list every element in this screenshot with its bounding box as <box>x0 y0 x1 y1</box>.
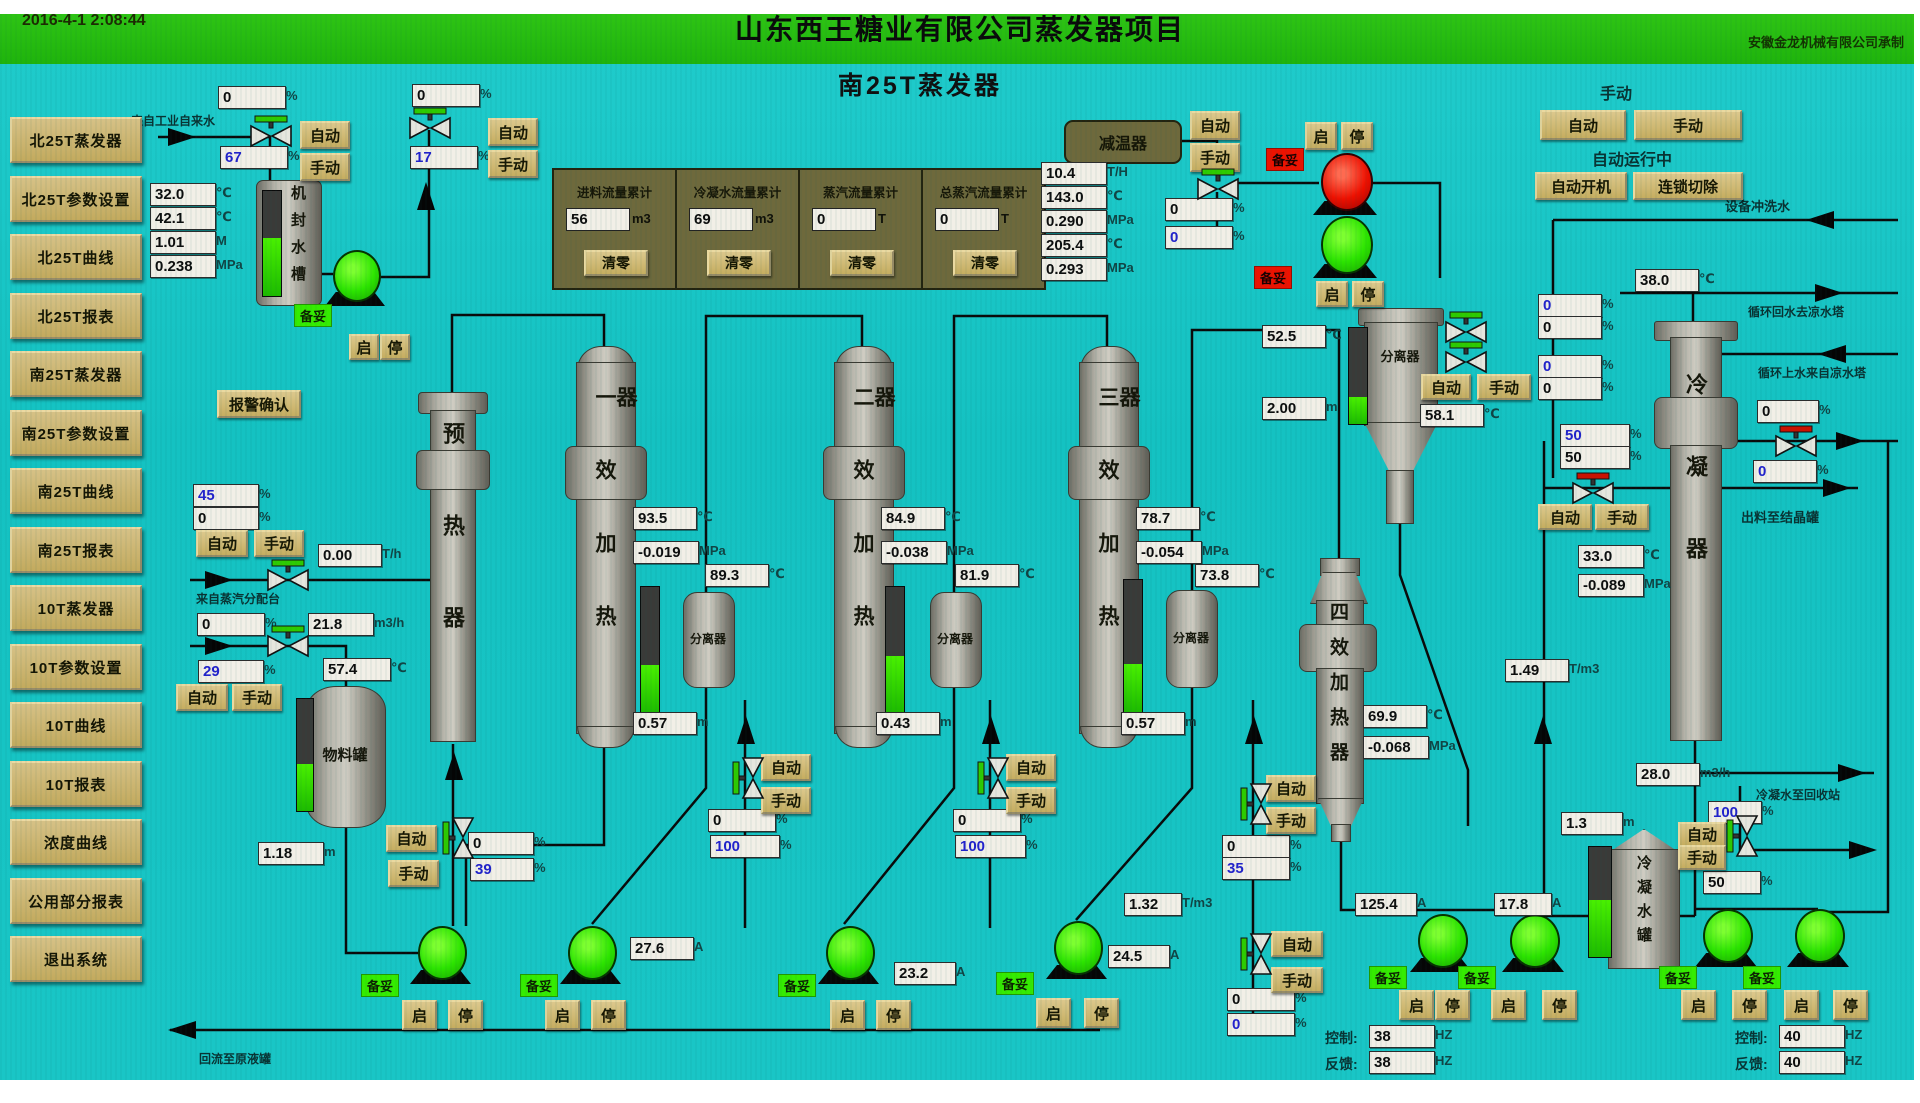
unit-label: ℃ <box>697 509 713 525</box>
process-value-box: -0.054 <box>1136 541 1202 564</box>
process-value-box: 0.57 <box>633 712 697 735</box>
main-separator-label: 分离器 <box>1364 346 1436 365</box>
setpoint-box[interactable]: 17 <box>410 146 478 169</box>
process-value-box: 0 <box>412 84 480 107</box>
totalizer-value: 56 <box>566 208 630 231</box>
control-valve[interactable] <box>1776 426 1816 456</box>
process-value-box: 69.9 <box>1363 705 1427 728</box>
process-value-box: 40 <box>1779 1051 1845 1074</box>
level-gauge <box>296 698 314 812</box>
flow-arrow-u <box>1245 716 1263 744</box>
setpoint-box[interactable]: 100 <box>955 835 1026 858</box>
pump-running[interactable] <box>333 250 381 302</box>
unit-label: A <box>956 964 965 979</box>
unit-label: % <box>534 834 546 849</box>
effect2-separator-label: 分离器 <box>930 630 980 647</box>
flow-arrow-r <box>1836 432 1864 450</box>
hmi-button[interactable]: 自动 <box>1266 775 1316 802</box>
preheater-column: 预热器 <box>416 392 488 748</box>
hmi-button[interactable]: 手动 <box>1678 845 1726 870</box>
unit-label: M <box>216 233 227 248</box>
unit-label: % <box>480 86 492 101</box>
totalizer-header: 蒸汽流量累计 <box>800 182 921 201</box>
process-value-box: 0 <box>218 86 286 109</box>
material-tank-label: 物料罐 <box>306 744 384 765</box>
sidebar-item-9[interactable]: 10T参数设置 <box>10 644 142 690</box>
process-value-box: 38.0 <box>1635 269 1699 292</box>
flow-arrow-r <box>1838 764 1866 782</box>
totalizer-clear-button[interactable]: 清零 <box>953 250 1017 276</box>
unit-label: T/h <box>382 546 402 561</box>
level-gauge-fill <box>641 665 659 713</box>
control-valve[interactable] <box>1446 342 1486 372</box>
hmi-button[interactable]: 启 <box>1305 122 1337 150</box>
hmi-button[interactable]: 手动 <box>232 684 282 711</box>
process-value-box: 17.8 <box>1494 893 1552 916</box>
unit-label: MPa <box>1202 543 1229 558</box>
totalizer-value: 0 <box>935 208 999 231</box>
page-title: 山东西王糖业有限公司蒸发器项目 <box>0 8 1920 48</box>
hmi-button[interactable]: 自动 <box>761 754 811 781</box>
hmi-button[interactable]: 启 <box>1681 990 1716 1020</box>
pipe-label: 反馈: <box>1325 1054 1358 1074</box>
unit-label: A <box>1170 947 1179 962</box>
process-value-box: 52.5 <box>1262 325 1326 348</box>
totalizer-header: 冷凝水流量累计 <box>677 182 798 201</box>
totalizer-value: 0 <box>812 208 876 231</box>
flow-arrow-u <box>445 752 463 780</box>
control-valve[interactable] <box>1198 169 1238 199</box>
hmi-button[interactable]: 自动 <box>1006 754 1056 781</box>
control-valve[interactable] <box>410 108 450 138</box>
process-value-box: 0.00 <box>318 544 382 567</box>
flow-arrow-r <box>168 128 196 146</box>
hmi-button[interactable]: 启 <box>1399 990 1434 1020</box>
unit-label: ℃ <box>216 185 232 201</box>
hmi-button[interactable]: 手动 <box>1006 787 1056 814</box>
process-value-box: 0 <box>197 613 265 636</box>
sidebar-item-7[interactable]: 南25T报表 <box>10 527 142 573</box>
sidebar-item-6[interactable]: 南25T曲线 <box>10 468 142 514</box>
unit-label: m3/h <box>374 615 404 630</box>
process-value-box: 50 <box>1703 871 1761 894</box>
process-value-box: 93.5 <box>633 507 697 530</box>
totalizer-cell-1: 冷凝水流量累计69m3清零 <box>677 170 800 288</box>
sidebar-item-10[interactable]: 10T曲线 <box>10 702 142 748</box>
ready-tag: 备妥 <box>1458 966 1496 989</box>
hmi-button[interactable]: 手动 <box>1477 374 1531 400</box>
setpoint-box[interactable]: 35 <box>1222 857 1290 880</box>
desuperheater-label: 减温器 <box>1064 120 1182 164</box>
process-value-box: 28.0 <box>1636 763 1700 786</box>
unit-label: ℃ <box>216 209 232 225</box>
effect4-label: 四效加热器 <box>1328 602 1347 777</box>
process-value-box: 1.18 <box>258 842 324 865</box>
process-value-box: 0 <box>1538 316 1602 339</box>
alarm-ready-tag: 备妥 <box>1254 266 1292 289</box>
process-value-box: 0.57 <box>1121 712 1185 735</box>
process-value-box: 38 <box>1369 1051 1435 1074</box>
hmi-button[interactable]: 启 <box>545 1000 580 1030</box>
unit-label: A <box>1417 895 1426 910</box>
totalizer-unit: m3 <box>632 211 651 226</box>
sidebar-item-13[interactable]: 公用部分报表 <box>10 878 142 924</box>
hmi-button[interactable]: 启 <box>1036 998 1071 1028</box>
setpoint-box[interactable]: 0 <box>1165 226 1233 249</box>
pipe-label: 冷凝水至回收站 <box>1756 786 1840 803</box>
hmi-button[interactable]: 停 <box>1732 990 1767 1020</box>
control-valve[interactable] <box>443 818 473 858</box>
unit-label: % <box>1602 357 1614 372</box>
level-gauge-fill <box>886 656 904 713</box>
pipe-label: 回流至原液罐 <box>199 1050 271 1067</box>
hmi-button[interactable]: 手动 <box>300 153 350 181</box>
effect1-label: 一效加热器 <box>594 386 636 748</box>
hmi-button[interactable]: 手动 <box>388 860 439 887</box>
process-value-box: 33.0 <box>1578 545 1644 568</box>
pipe-label: 循环回水去凉水塔 <box>1748 303 1844 320</box>
hmi-button[interactable]: 自动 <box>300 121 350 149</box>
desuperheater-value: 0.290 <box>1041 210 1107 233</box>
pump-running[interactable] <box>1510 914 1560 968</box>
process-value-box: 24.5 <box>1108 945 1170 968</box>
sidebar-item-0[interactable]: 北25T蒸发器 <box>10 117 142 163</box>
process-value-box: -0.089 <box>1578 574 1644 597</box>
level-gauge-fill <box>263 238 281 296</box>
hmi-button[interactable]: 手动 <box>1190 143 1240 172</box>
process-value-box: -0.068 <box>1363 736 1429 759</box>
hmi-button[interactable]: 自动 <box>1538 504 1592 530</box>
control-valve[interactable] <box>1727 816 1757 856</box>
unit-label: % <box>1819 402 1831 417</box>
setpoint-box[interactable]: 0 <box>1753 460 1817 483</box>
flow-arrow-u <box>1534 716 1552 744</box>
unit-label: m <box>697 714 709 729</box>
unit-label: % <box>1602 379 1614 394</box>
condensate-tank-label: 冷凝水罐 <box>1636 855 1651 951</box>
hmi-button[interactable]: 手动 <box>761 787 811 814</box>
control-valve[interactable] <box>1446 312 1486 342</box>
process-value-box: 0 <box>1757 400 1819 423</box>
flow-arrow-l <box>1806 211 1834 229</box>
hmi-button[interactable]: 启 <box>1784 990 1819 1020</box>
ready-tag: 备妥 <box>361 974 399 997</box>
ready-tag: 备妥 <box>1743 966 1781 989</box>
hmi-button[interactable]: 连锁切除 <box>1633 172 1743 200</box>
process-value-box: 1.32 <box>1124 893 1182 916</box>
pump-running[interactable] <box>418 926 467 980</box>
level-gauge <box>1588 846 1612 958</box>
hmi-button[interactable]: 自动 <box>1271 931 1323 957</box>
totalizer-header: 总蒸汽流量累计 <box>923 182 1044 201</box>
control-valve[interactable] <box>268 626 308 656</box>
pipe-label: 控制: <box>1325 1028 1358 1048</box>
effect1-separator-label: 分离器 <box>683 630 733 647</box>
process-value-box: 78.7 <box>1136 507 1200 530</box>
effect3-separator-label: 分离器 <box>1166 629 1216 646</box>
unit-label: % <box>1233 228 1245 243</box>
process-value-box: 0.238 <box>150 255 216 278</box>
hmi-button[interactable]: 停 <box>1352 281 1384 307</box>
unit-label: HZ <box>1845 1053 1862 1068</box>
hmi-button[interactable]: 启 <box>1491 990 1526 1020</box>
setpoint-box[interactable]: 67 <box>220 146 288 169</box>
process-value-box: 2.00 <box>1262 397 1326 420</box>
unit-label: m <box>1623 814 1635 829</box>
unit-label: T/H <box>1107 164 1128 179</box>
process-value-box: 1.01 <box>150 231 216 254</box>
flow-arrow-l <box>168 1021 196 1039</box>
material-tank: 物料罐 <box>306 686 384 826</box>
hmi-button[interactable]: 手动 <box>1266 807 1316 834</box>
unit-label: % <box>1233 200 1245 215</box>
unit-label: m <box>940 714 952 729</box>
sidebar-item-5[interactable]: 南25T参数设置 <box>10 410 142 456</box>
hmi-button[interactable]: 自动 <box>1190 111 1240 140</box>
pipe-label: 控制: <box>1735 1028 1768 1048</box>
vendor-credit: 安徽金龙机械有限公司承制 <box>1748 32 1904 51</box>
flow-arrow-r <box>1849 841 1877 859</box>
totalizer-unit: T <box>878 211 886 226</box>
screen-subtitle: 南25T蒸发器 <box>640 66 1200 102</box>
pump-running[interactable] <box>826 926 875 980</box>
effect2-separator: 分离器 <box>930 592 980 686</box>
unit-label: % <box>1290 859 1302 874</box>
unit-label: ℃ <box>1484 406 1500 422</box>
flow-totalizer-panel: 进料流量累计56m3清零冷凝水流量累计69m3清零蒸汽流量累计0T清零总蒸汽流量… <box>552 168 1046 290</box>
setpoint-box[interactable]: 29 <box>198 660 264 683</box>
desuperheater-value: 205.4 <box>1041 234 1107 257</box>
process-value-box: 21.8 <box>308 613 374 636</box>
alarm-ready-tag: 备妥 <box>1266 148 1304 171</box>
unit-label: MPa <box>1644 576 1671 591</box>
hmi-button[interactable]: 自动 <box>386 825 437 852</box>
process-value-box: 0 <box>193 507 259 530</box>
setpoint-box[interactable]: 0 <box>1538 355 1602 378</box>
unit-label: ℃ <box>391 660 407 676</box>
pump-running[interactable] <box>1054 921 1103 975</box>
sidebar-item-1[interactable]: 北25T参数设置 <box>10 176 142 222</box>
desuperheater-value: 0.293 <box>1041 258 1107 281</box>
hmi-button[interactable]: 手动 <box>1634 110 1742 140</box>
sidebar-item-3[interactable]: 北25T报表 <box>10 293 142 339</box>
unit-label: MPa <box>947 543 974 558</box>
process-value-box: 1.49 <box>1505 659 1569 682</box>
hmi-button[interactable]: 停 <box>1542 990 1577 1020</box>
pump-stopped[interactable] <box>1321 153 1373 211</box>
pipe-label: 手动 <box>1600 80 1632 104</box>
process-value-box: 27.6 <box>630 937 694 960</box>
hmi-button[interactable]: 手动 <box>1271 967 1323 993</box>
hmi-button[interactable]: 停 <box>1084 998 1119 1028</box>
process-value-box: 50 <box>1560 446 1630 469</box>
level-gauge <box>885 586 905 714</box>
effect3-separator: 分离器 <box>1166 590 1216 686</box>
level-gauge <box>262 190 282 297</box>
flow-arrow-u <box>982 716 1000 744</box>
sidebar-item-12[interactable]: 浓度曲线 <box>10 819 142 865</box>
process-value-box: 81.9 <box>955 564 1019 587</box>
totalizer-clear-button[interactable]: 清零 <box>584 250 648 276</box>
sidebar-item-14[interactable]: 退出系统 <box>10 936 142 982</box>
pump-running[interactable] <box>1703 909 1753 963</box>
ready-tag: 备妥 <box>778 974 816 997</box>
process-value-box: 57.4 <box>323 658 391 681</box>
flow-arrow-r <box>205 571 233 589</box>
unit-label: ℃ <box>1019 566 1035 582</box>
unit-label: m <box>324 844 336 859</box>
control-valve[interactable] <box>1573 473 1613 503</box>
unit-label: MPa <box>1107 212 1134 227</box>
hmi-button[interactable]: 自动 <box>196 530 248 557</box>
sidebar-item-8[interactable]: 10T蒸发器 <box>10 585 142 631</box>
flow-arrow-u <box>417 182 435 210</box>
hmi-button[interactable]: 启 <box>830 1000 865 1030</box>
unit-label: A <box>1552 895 1561 910</box>
process-value-box: 58.1 <box>1420 404 1484 427</box>
level-gauge-fill <box>1589 900 1611 957</box>
setpoint-box[interactable]: 0 <box>1538 294 1602 317</box>
unit-label: ℃ <box>1107 188 1123 204</box>
condenser-label: 冷凝器 <box>1684 373 1706 619</box>
control-valve[interactable] <box>268 560 308 590</box>
unit-label: % <box>1630 426 1642 441</box>
ready-tag: 备妥 <box>1659 966 1697 989</box>
level-gauge <box>1348 327 1368 425</box>
hmi-button[interactable]: 启 <box>1316 281 1348 307</box>
hmi-button[interactable]: 自动 <box>176 684 228 711</box>
process-value-box: 0 <box>1538 377 1602 400</box>
process-value-box: 32.0 <box>150 183 216 206</box>
pipe-label: 出料至结晶罐 <box>1741 507 1819 526</box>
process-value-box: 38 <box>1369 1025 1435 1048</box>
totalizer-clear-button[interactable]: 清零 <box>830 250 894 276</box>
hmi-button[interactable]: 停 <box>876 1000 911 1030</box>
setpoint-box[interactable]: 0 <box>1227 1013 1295 1036</box>
unit-label: ℃ <box>1427 707 1443 723</box>
unit-label: ℃ <box>1326 327 1342 343</box>
control-valve[interactable] <box>978 758 1008 798</box>
unit-label: HZ <box>1435 1027 1452 1042</box>
setpoint-box[interactable]: 39 <box>470 858 534 881</box>
unit-label: MPa <box>699 543 726 558</box>
level-gauge-fill <box>1349 397 1367 424</box>
process-value-box: 0 <box>1165 198 1233 221</box>
control-valve[interactable] <box>1241 934 1271 974</box>
hmi-button[interactable]: 停 <box>591 1000 626 1030</box>
pump-running[interactable] <box>1418 914 1468 968</box>
unit-label: ℃ <box>945 509 961 525</box>
process-value-box: 23.2 <box>894 962 956 985</box>
unit-label: m <box>1326 399 1338 414</box>
totalizer-cell-0: 进料流量累计56m3清零 <box>554 170 677 288</box>
flow-arrow-r <box>1823 479 1851 497</box>
process-value-box: 73.8 <box>1195 564 1259 587</box>
pipe-label: 反馈: <box>1735 1054 1768 1074</box>
setpoint-box[interactable]: 100 <box>710 835 780 858</box>
unit-label: T/m3 <box>1182 895 1212 910</box>
unit-label: % <box>1290 837 1302 852</box>
unit-label: % <box>1602 318 1614 333</box>
level-gauge <box>1123 579 1143 713</box>
unit-label: % <box>1602 296 1614 311</box>
hmi-button[interactable]: 启 <box>402 1000 437 1030</box>
unit-label: ℃ <box>1200 509 1216 525</box>
flow-arrow-u <box>737 716 755 744</box>
unit-label: % <box>259 486 271 501</box>
hmi-button[interactable]: 手动 <box>254 530 304 557</box>
unit-label: % <box>780 837 792 852</box>
pump-running[interactable] <box>568 926 617 980</box>
hmi-button[interactable]: 自动 <box>488 118 538 146</box>
sidebar-item-11[interactable]: 10T报表 <box>10 761 142 807</box>
flow-arrow-r <box>1815 284 1843 302</box>
condenser-column: 冷凝器 <box>1654 321 1736 739</box>
control-valve[interactable] <box>733 758 763 798</box>
totalizer-cell-3: 总蒸汽流量累计0T清零 <box>923 170 1044 288</box>
pump-running[interactable] <box>1795 909 1845 963</box>
unit-label: % <box>1762 803 1774 818</box>
sidebar-item-4[interactable]: 南25T蒸发器 <box>10 351 142 397</box>
hmi-button[interactable]: 自动开机 <box>1535 172 1627 200</box>
hmi-button[interactable]: 停 <box>380 334 410 360</box>
hmi-button[interactable]: 自动 <box>1421 374 1471 400</box>
setpoint-box[interactable]: 45 <box>193 484 259 507</box>
control-valve[interactable] <box>1241 784 1271 824</box>
hmi-button[interactable]: 报警确认 <box>217 390 301 418</box>
hmi-button[interactable]: 停 <box>1341 122 1373 150</box>
pipe-label: 来自蒸汽分配台 <box>196 590 280 607</box>
hmi-button[interactable]: 停 <box>448 1000 483 1030</box>
unit-label: MPa <box>1429 738 1456 753</box>
hmi-button[interactable]: 启 <box>349 334 379 360</box>
process-value-box: 42.1 <box>150 207 216 230</box>
totalizer-unit: m3 <box>755 211 774 226</box>
unit-label: % <box>288 148 300 163</box>
pipe-label: 自动运行中 <box>1592 146 1672 170</box>
condensate-tank: 冷凝水罐 <box>1608 829 1678 967</box>
totalizer-header: 进料流量累计 <box>554 182 675 201</box>
pump-running[interactable] <box>1321 216 1373 274</box>
level-gauge <box>640 586 660 714</box>
process-value-box: 1.3 <box>1561 812 1623 835</box>
level-gauge-fill <box>297 764 313 811</box>
hmi-button[interactable]: 停 <box>1435 990 1470 1020</box>
seal-water-tank-label: 机封水槽 <box>290 185 305 293</box>
unit-label: % <box>1630 448 1642 463</box>
unit-label: % <box>1817 462 1829 477</box>
sidebar-item-2[interactable]: 北25T曲线 <box>10 234 142 280</box>
totalizer-clear-button[interactable]: 清零 <box>707 250 771 276</box>
level-gauge-fill <box>1124 664 1142 712</box>
unit-label: MPa <box>1107 260 1134 275</box>
process-value-box: 40 <box>1779 1025 1845 1048</box>
process-value-box: 0.43 <box>876 712 940 735</box>
hmi-button[interactable]: 自动 <box>1540 110 1626 140</box>
totalizer-unit: T <box>1001 211 1009 226</box>
hmi-button[interactable]: 停 <box>1833 990 1868 1020</box>
unit-label: m <box>1185 714 1197 729</box>
process-value-box: 0 <box>1222 835 1290 858</box>
setpoint-box[interactable]: 50 <box>1560 424 1630 447</box>
hmi-button[interactable]: 自动 <box>1678 822 1726 847</box>
unit-label: ℃ <box>1699 271 1715 287</box>
hmi-button[interactable]: 手动 <box>1595 504 1649 530</box>
hmi-button[interactable]: 手动 <box>488 150 538 178</box>
control-valve[interactable] <box>251 116 291 146</box>
flow-arrow-l <box>1818 345 1846 363</box>
totalizer-value: 69 <box>689 208 753 231</box>
